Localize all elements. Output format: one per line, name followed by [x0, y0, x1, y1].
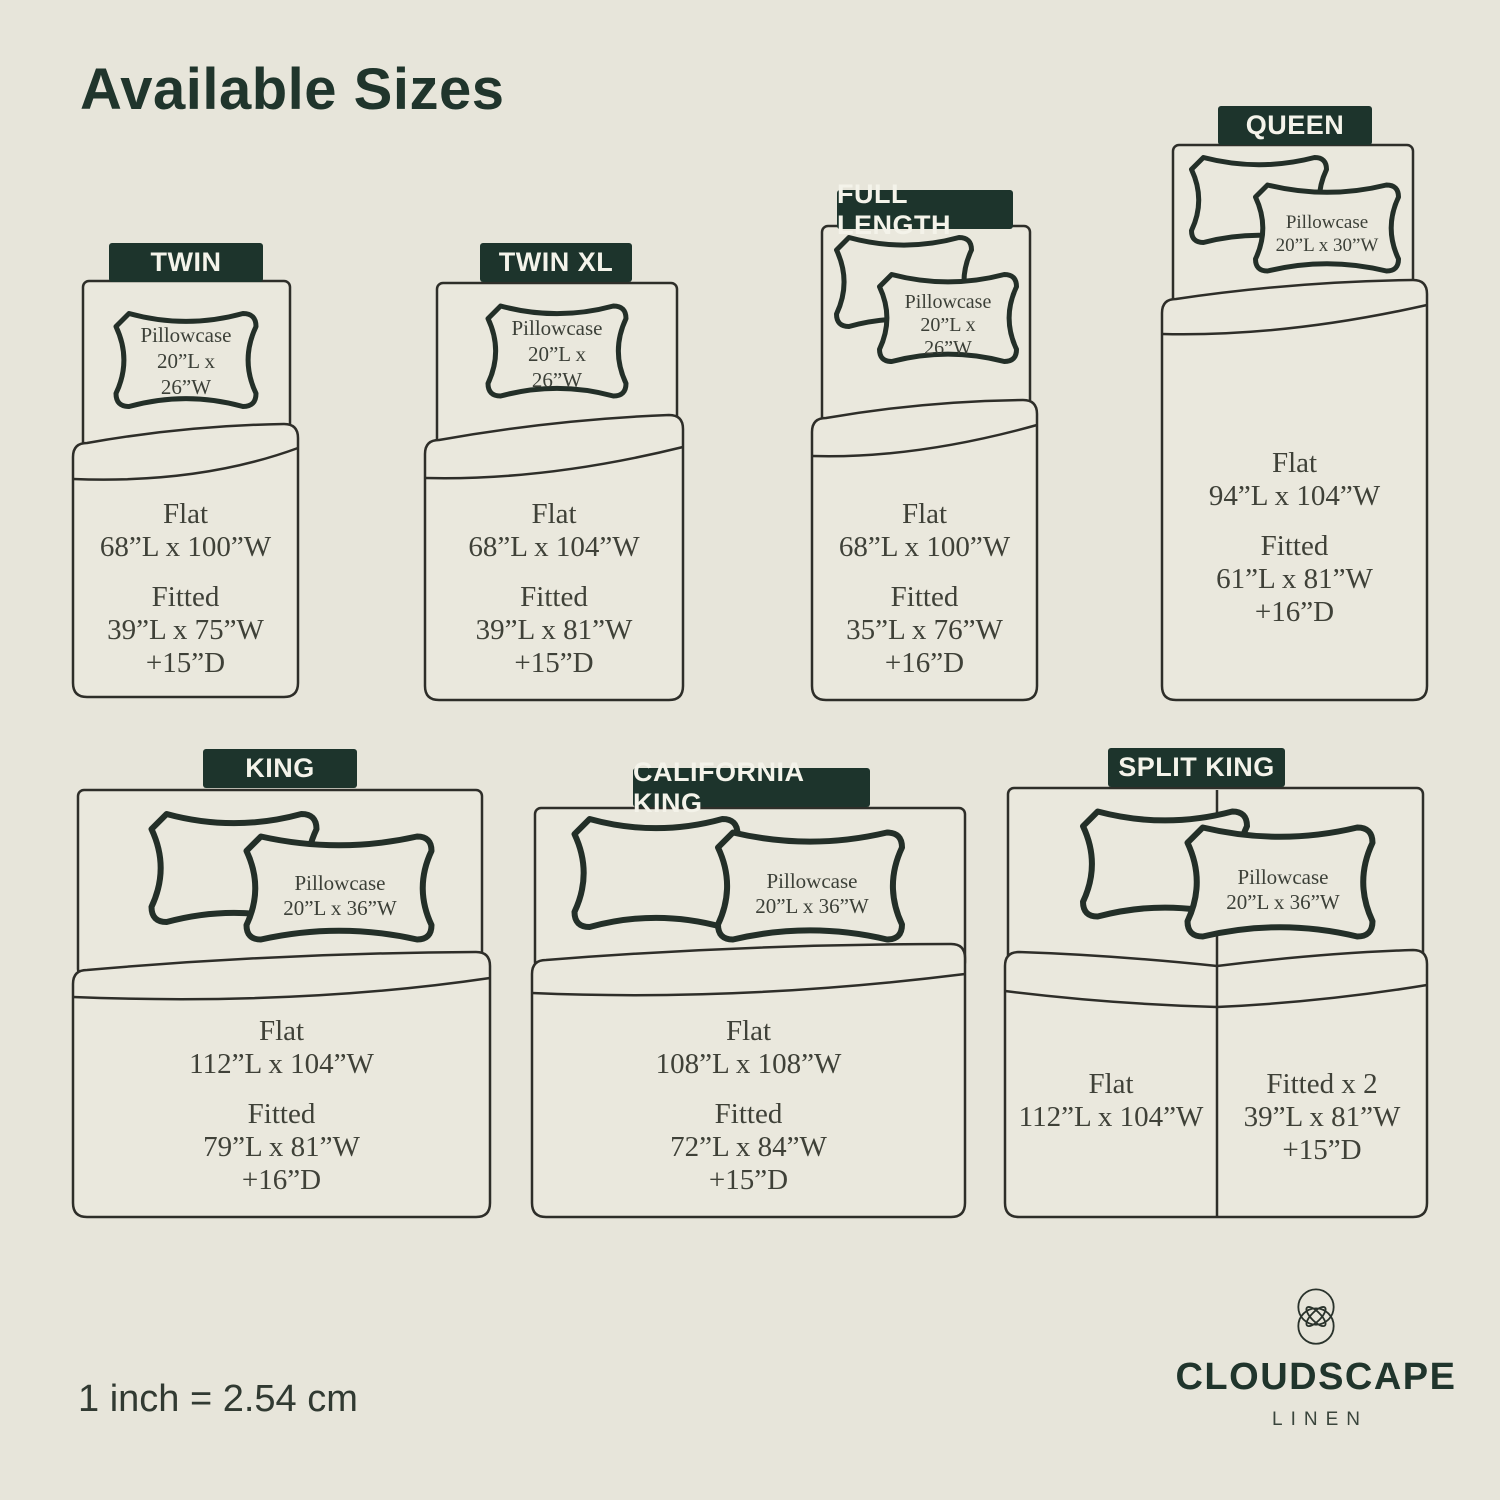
fitted-depth: +15”D [1217, 1134, 1427, 1167]
flat-dims: 112”L x 104”W [73, 1048, 490, 1081]
bed-full-length-sheet-text: Flat 68”L x 100”W Fitted 35”L x 76”W +16… [812, 498, 1037, 680]
pillowcase-dims-line1: 20”L x 30”W [1227, 234, 1427, 257]
pillowcase-dims-line2: 26”W [472, 367, 642, 393]
fitted-depth: +15”D [73, 647, 298, 680]
pillowcase-label: Pillowcase [1227, 211, 1427, 234]
pillowcase-dims-line1: 20”L x [863, 314, 1033, 337]
flat-label: Flat [1005, 1068, 1217, 1101]
bed-split-king-pillow-text: Pillowcase 20”L x 36”W [1183, 865, 1383, 915]
fitted-dims: 79”L x 81”W [73, 1131, 490, 1164]
bed-california-king-pillow-text: Pillowcase 20”L x 36”W [712, 869, 912, 919]
pillowcase-dims-line1: 20”L x 36”W [712, 894, 912, 919]
spacer [532, 1081, 965, 1098]
bed-king-sheet-text: Flat 112”L x 104”W Fitted 79”L x 81”W +1… [73, 1015, 490, 1197]
page-title: Available Sizes [80, 56, 504, 123]
fitted-label: Fitted [812, 581, 1037, 614]
fitted-dims: 39”L x 81”W [1217, 1101, 1427, 1134]
fitted-dims: 72”L x 84”W [532, 1131, 965, 1164]
scale-note: 1 inch = 2.54 cm [78, 1378, 358, 1421]
fitted-depth: +16”D [73, 1164, 490, 1197]
pillowcase-dims-line1: 20”L x [472, 341, 642, 367]
bed-queen-pillow-text: Pillowcase 20”L x 30”W [1227, 211, 1427, 257]
pillowcase-label: Pillowcase [472, 315, 642, 341]
pillowcase-dims-line1: 20”L x [101, 348, 271, 374]
fitted-dims: 61”L x 81”W [1162, 563, 1427, 596]
bed-twin-sheet-text: Flat 68”L x 100”W Fitted 39”L x 75”W +15… [73, 498, 298, 680]
spacer [425, 564, 683, 581]
bed-twin-xl-sheet-text: Flat 68”L x 104”W Fitted 39”L x 81”W +15… [425, 498, 683, 680]
flat-dims: 112”L x 104”W [1005, 1101, 1217, 1134]
bed-queen-sheet-text: Flat 94”L x 104”W Fitted 61”L x 81”W +16… [1162, 447, 1427, 629]
flat-label: Flat [532, 1015, 965, 1048]
bed-twin-label: TWIN [109, 243, 263, 282]
flat-dims: 68”L x 100”W [812, 531, 1037, 564]
spacer [73, 1081, 490, 1098]
bed-full-length-label: FULL LENGTH [837, 190, 1013, 229]
fitted-depth: +16”D [1162, 596, 1427, 629]
bed-twin-xl-label: TWIN XL [480, 243, 632, 282]
pillowcase-dims-line2: 26”W [101, 374, 271, 400]
flat-label: Flat [73, 498, 298, 531]
pillowcase-dims-line2: 26”W [863, 337, 1033, 360]
fitted-label: Fitted [532, 1098, 965, 1131]
bed-california-king-label: CALIFORNIA KING [633, 768, 870, 807]
bed-king-pillow-text: Pillowcase 20”L x 36”W [240, 871, 440, 921]
pillowcase-label: Pillowcase [863, 291, 1033, 314]
pillowcase-label: Pillowcase [240, 871, 440, 896]
fitted-dims: 39”L x 81”W [425, 614, 683, 647]
fitted-depth: +15”D [532, 1164, 965, 1197]
fitted-depth: +16”D [812, 647, 1037, 680]
bed-twin-xl-pillow-text: Pillowcase 20”L x 26”W [472, 315, 642, 393]
flat-dims: 94”L x 104”W [1162, 480, 1427, 513]
bed-california-king-sheet-text: Flat 108”L x 108”W Fitted 72”L x 84”W +1… [532, 1015, 965, 1197]
bed-split-king-label: SPLIT KING [1108, 748, 1285, 787]
flat-label: Flat [73, 1015, 490, 1048]
bed-split-king-right-sheet-text: Fitted x 2 39”L x 81”W +15”D [1217, 1068, 1427, 1167]
fitted-dims: 39”L x 75”W [73, 614, 298, 647]
flat-label: Flat [425, 498, 683, 531]
bed-queen-label: QUEEN [1218, 106, 1372, 145]
flat-dims: 108”L x 108”W [532, 1048, 965, 1081]
fitted-label: Fitted [1162, 530, 1427, 563]
fitted-depth: +15”D [425, 647, 683, 680]
brand-tagline: LINEN [1160, 1409, 1472, 1431]
pillowcase-label: Pillowcase [1183, 865, 1383, 890]
bed-split-king-left-sheet-text: Flat 112”L x 104”W [1005, 1068, 1217, 1134]
spacer [1162, 513, 1427, 530]
bed-full-length-pillow-text: Pillowcase 20”L x 26”W [863, 291, 1033, 360]
flat-label: Flat [1162, 447, 1427, 480]
fitted-dims: 35”L x 76”W [812, 614, 1037, 647]
spacer [812, 564, 1037, 581]
spacer [73, 564, 298, 581]
pillowcase-dims-line1: 20”L x 36”W [1183, 890, 1383, 915]
pillowcase-label: Pillowcase [712, 869, 912, 894]
flat-label: Flat [812, 498, 1037, 531]
pillowcase-dims-line1: 20”L x 36”W [240, 896, 440, 921]
fitted-label: Fitted x 2 [1217, 1068, 1427, 1101]
bed-king-label: KING [203, 749, 357, 788]
flat-dims: 68”L x 100”W [73, 531, 298, 564]
fitted-label: Fitted [73, 1098, 490, 1131]
fitted-label: Fitted [425, 581, 683, 614]
fitted-label: Fitted [73, 581, 298, 614]
flat-dims: 68”L x 104”W [425, 531, 683, 564]
pillowcase-label: Pillowcase [101, 322, 271, 348]
brand-name: CLOUDSCAPE [1160, 1356, 1472, 1399]
cloudscape-logo-icon [1296, 1288, 1336, 1346]
bed-twin-pillow-text: Pillowcase 20”L x 26”W [101, 322, 271, 400]
brand-block: CLOUDSCAPE LINEN [1160, 1288, 1472, 1431]
